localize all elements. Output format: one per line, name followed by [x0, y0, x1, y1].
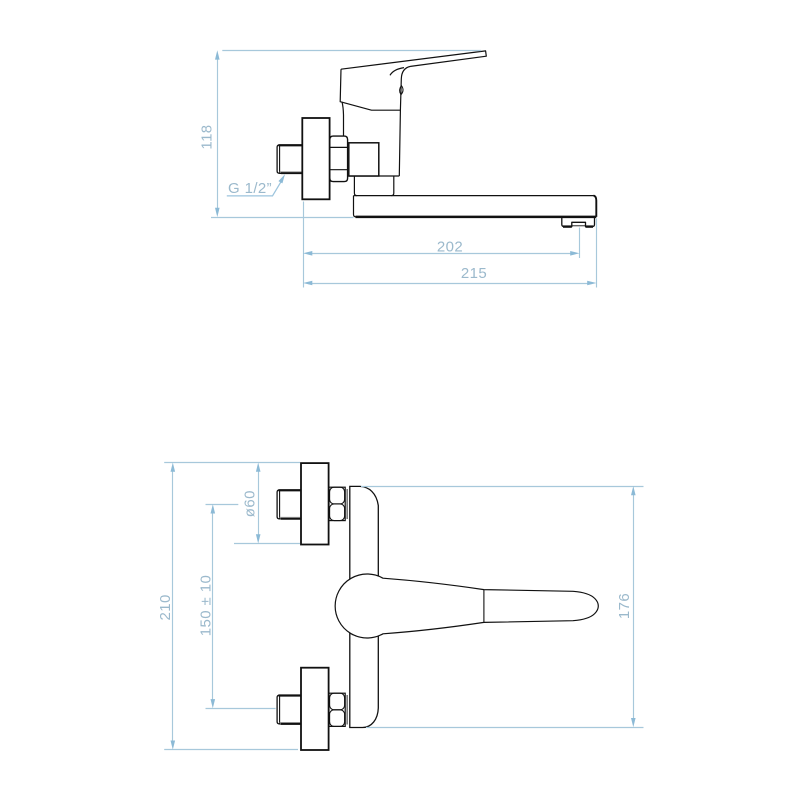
svg-text:118: 118 [198, 124, 215, 149]
svg-text:210: 210 [157, 594, 174, 620]
svg-text:176: 176 [616, 593, 633, 619]
svg-text:150 ± 10: 150 ± 10 [198, 575, 215, 636]
svg-text:215: 215 [461, 265, 487, 282]
svg-text:G 1/2”: G 1/2” [228, 180, 272, 197]
svg-text:ø60: ø60 [241, 490, 258, 517]
svg-text:202: 202 [437, 239, 463, 256]
